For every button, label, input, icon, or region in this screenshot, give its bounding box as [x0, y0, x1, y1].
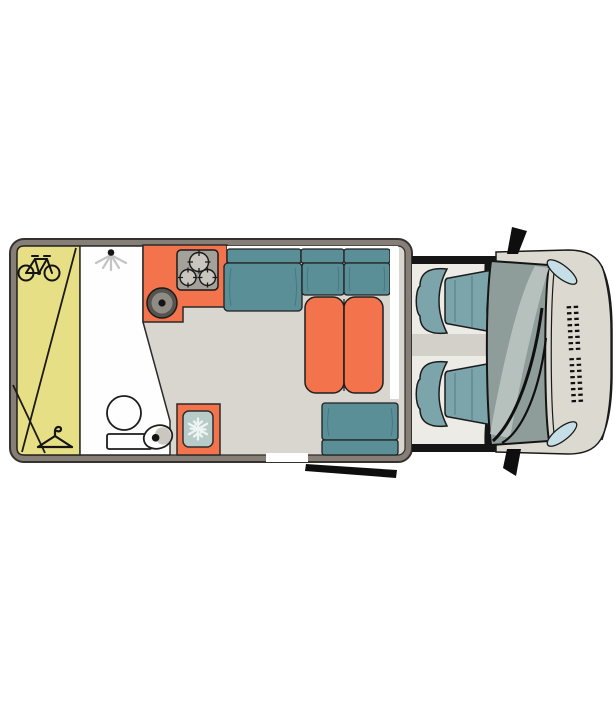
side-seat-backrest: [322, 440, 398, 455]
entry-step: [305, 464, 397, 478]
side-mirror-icon-top: [507, 227, 527, 254]
dinette-table: [305, 297, 383, 393]
habitation-module: [10, 239, 412, 478]
door-opening: [266, 453, 308, 462]
side-mirror-icon-bottom: [503, 449, 521, 476]
driver-cab: [412, 227, 612, 476]
driver-seat: [416, 269, 494, 334]
side-seat-cushion: [322, 403, 398, 440]
garage-area: [13, 246, 80, 455]
stove-icon: [177, 250, 218, 290]
sofa-back-cushion: [301, 249, 344, 263]
floor-plan-page: [0, 0, 616, 704]
sofa-chaise-cushion: [224, 263, 302, 311]
refrigerator-unit: [177, 404, 220, 455]
table-leaf: [305, 297, 344, 393]
side-seat: [322, 403, 398, 455]
sofa-back-cushion: [344, 249, 390, 263]
window-strip: [390, 247, 399, 399]
floor-plan-canvas: [0, 0, 616, 704]
passenger-seat: [416, 362, 494, 427]
sink-icon: [147, 288, 177, 318]
table-leaf: [344, 297, 383, 393]
sofa-back-cushion: [227, 249, 301, 263]
sofa-seat-cushion: [344, 263, 390, 295]
